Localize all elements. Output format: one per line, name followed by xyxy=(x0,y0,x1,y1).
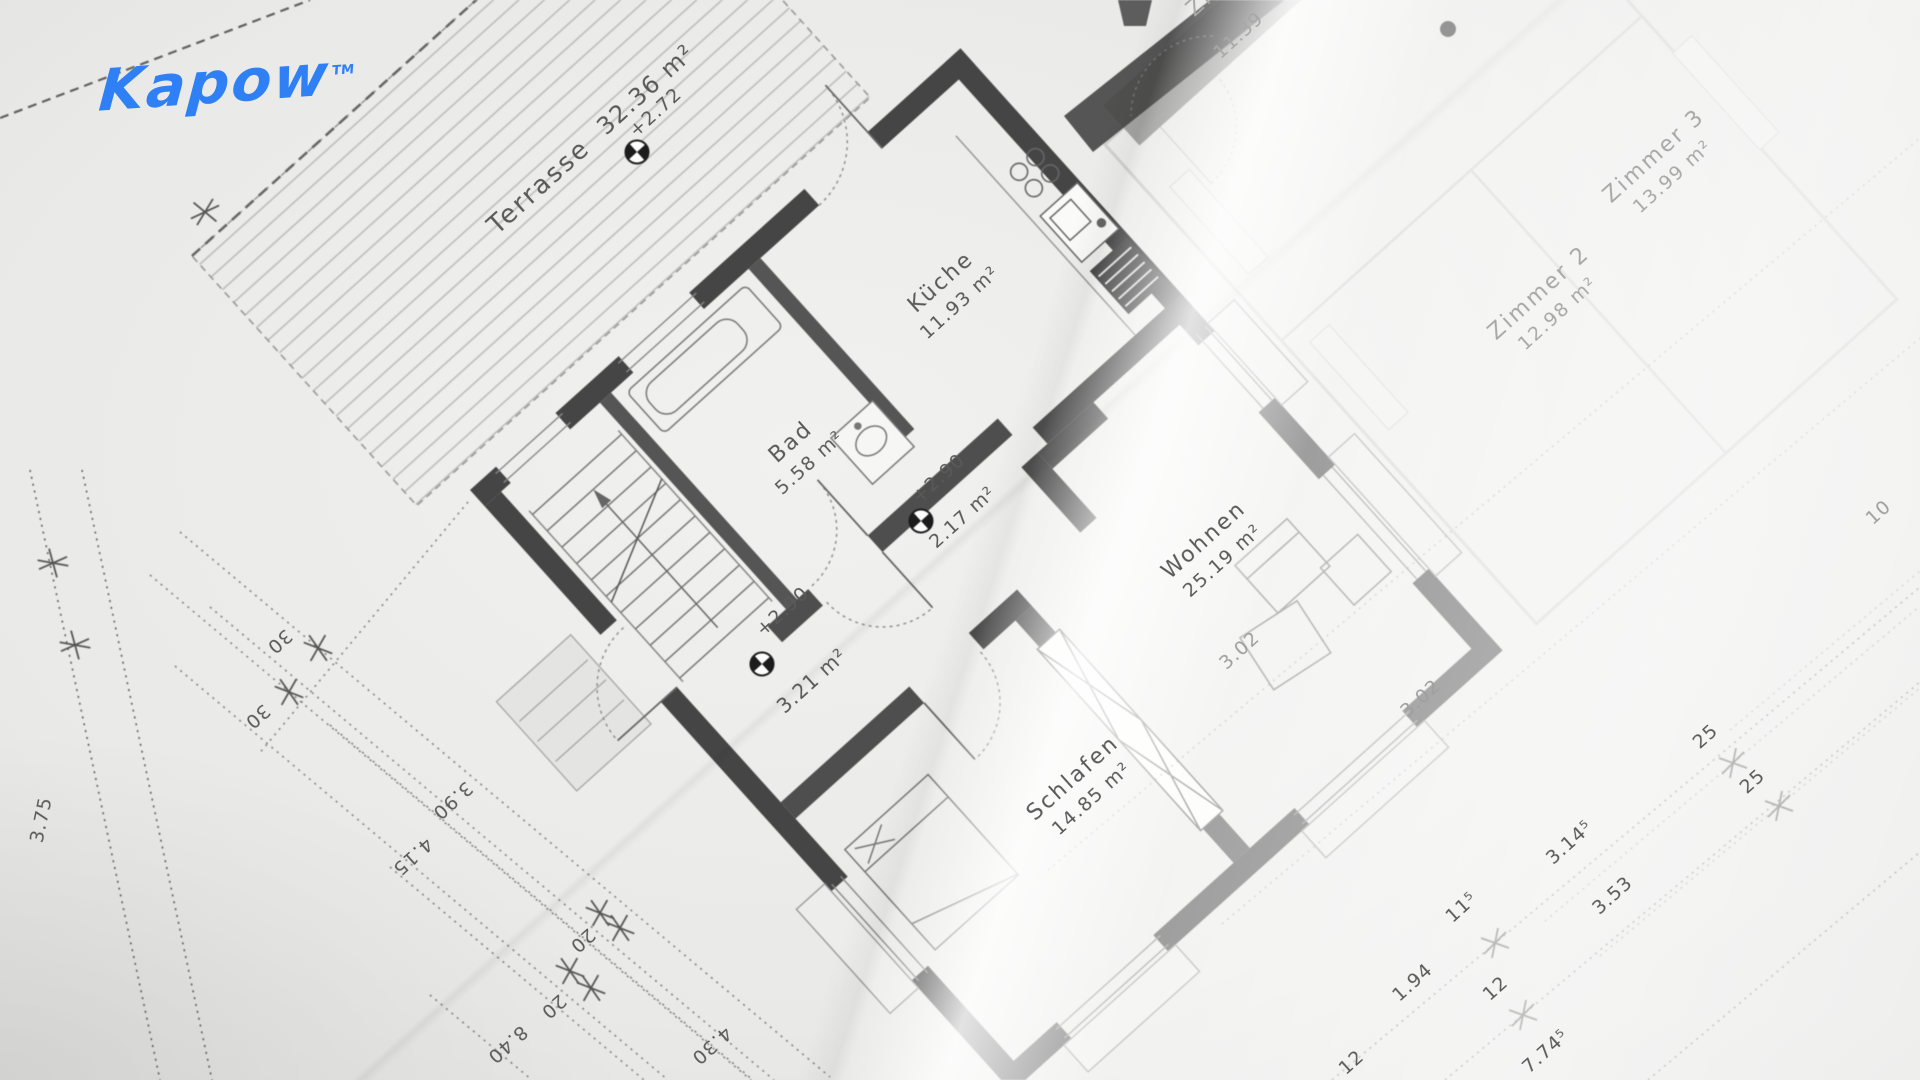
kitchen-sink xyxy=(1040,183,1119,263)
dishwasher xyxy=(1090,238,1166,315)
entry-porch xyxy=(496,635,651,791)
dimension-lines-left xyxy=(150,502,830,1080)
bed xyxy=(845,775,1019,950)
sheet-edges xyxy=(0,0,310,1080)
trademark-symbol: TM xyxy=(332,62,355,78)
blueprint-photo: Terrasse 32.36 m² +2.72 Küche 11.93 m² B… xyxy=(0,0,1920,1080)
